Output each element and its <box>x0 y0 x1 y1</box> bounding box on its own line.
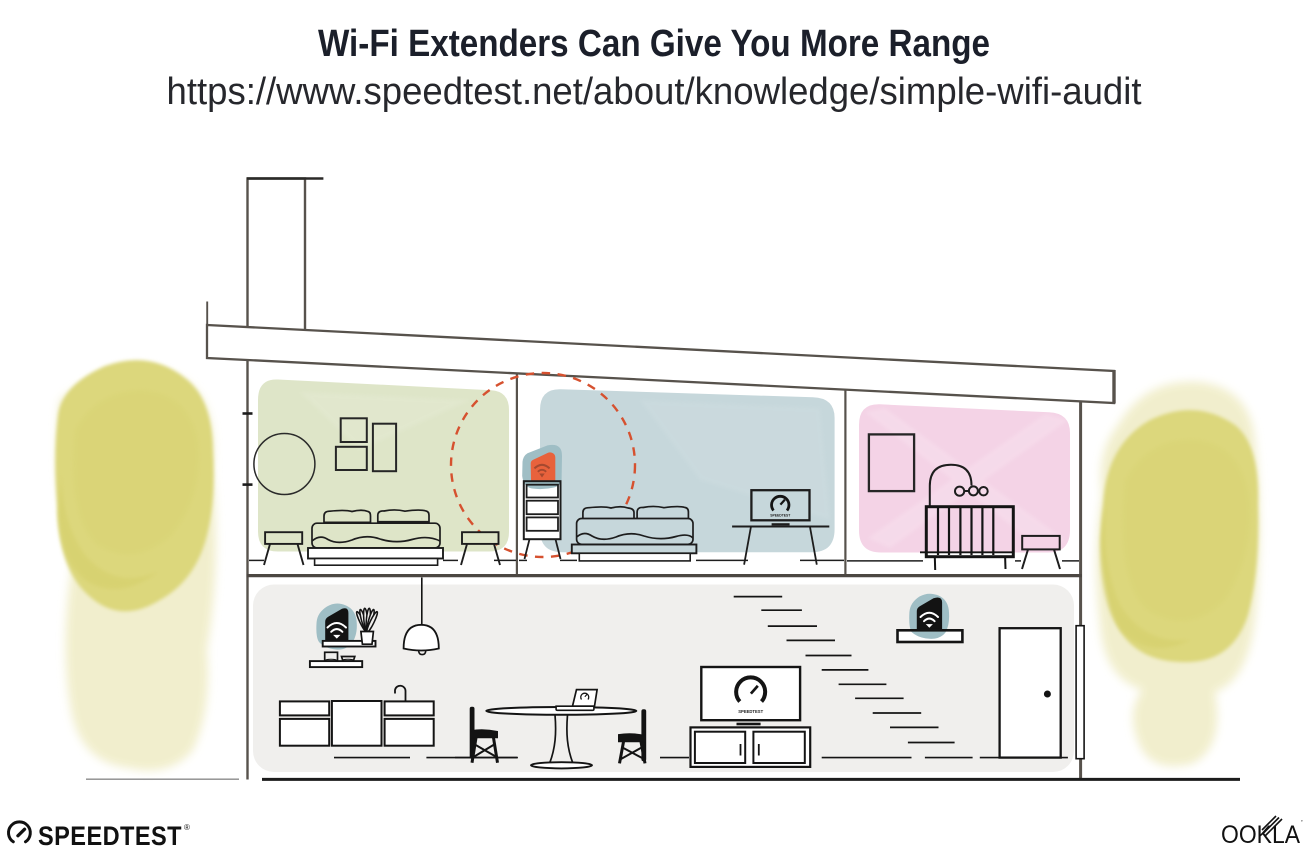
svg-text:SPEEDTEST: SPEEDTEST <box>738 709 763 714</box>
svg-text:’: ’ <box>1301 819 1303 828</box>
svg-text:SPEEDTEST: SPEEDTEST <box>38 821 182 851</box>
svg-text:https://www.speedtest.net/abou: https://www.speedtest.net/about/knowledg… <box>167 71 1142 113</box>
svg-text:OOKLA: OOKLA <box>1221 821 1300 849</box>
svg-text:Wi-Fi Extenders Can Give You M: Wi-Fi Extenders Can Give You More Range <box>318 23 990 65</box>
svg-text:®: ® <box>184 823 190 832</box>
svg-text:SPEEDTEST: SPEEDTEST <box>770 514 791 518</box>
